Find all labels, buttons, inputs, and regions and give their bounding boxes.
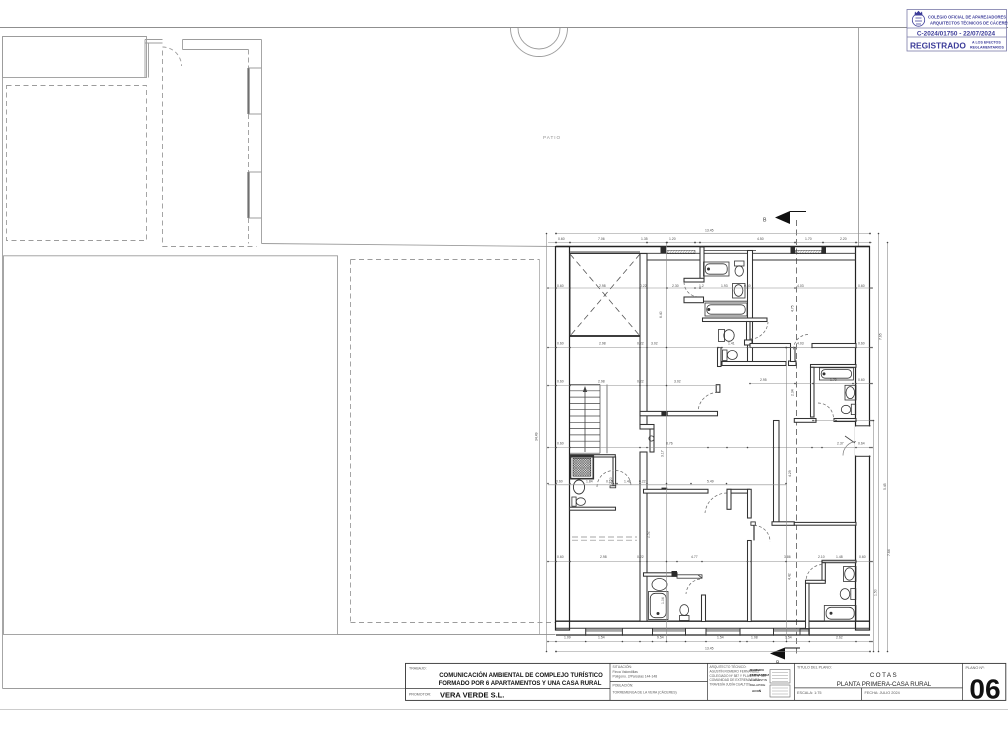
svg-text:0.60: 0.60 [557,342,564,346]
svg-text:0.60: 0.60 [558,237,565,241]
svg-text:0.64: 0.64 [858,442,865,446]
svg-text:TRAVESÍA JUDÍA CUALTOS: TRAVESÍA JUDÍA CUALTOS [710,682,751,686]
svg-text:8.76: 8.76 [666,442,673,446]
svg-text:7.65: 7.65 [879,333,883,340]
svg-text:2.98: 2.98 [600,555,607,559]
svg-text:4.50: 4.50 [757,237,764,241]
svg-text:2.52: 2.52 [647,531,651,538]
svg-text:1.48: 1.48 [836,555,843,559]
svg-text:Polígono. 2/Parcelas 144-148: Polígono. 2/Parcelas 144-148 [613,675,658,679]
svg-text:7.06: 7.06 [598,237,605,241]
svg-text:PROMOTOR:: PROMOTOR: [409,693,431,697]
svg-text:13.45: 13.45 [705,647,714,651]
svg-text:VERA VERDE S.L.: VERA VERDE S.L. [440,691,504,700]
svg-text:COTAS: COTAS [870,672,898,679]
svg-text:1.2: 1.2 [699,284,704,288]
svg-text:FERNANDEZ: FERNANDEZ [750,673,769,677]
svg-text:C-2024/01750 - 22/07/2024: C-2024/01750 - 22/07/2024 [917,30,996,37]
svg-text:5.45: 5.45 [883,483,887,490]
svg-text:SITUACIÓN:: SITUACIÓN: [613,664,632,669]
svg-text:2.30: 2.30 [672,284,679,288]
svg-text:ARQUITECTOS TÉCNICOS DE CÁCERE: ARQUITECTOS TÉCNICOS DE CÁCERES [930,21,1008,26]
svg-text:0.60: 0.60 [557,284,564,288]
svg-text:1.20: 1.20 [669,237,676,241]
svg-text:ESCALA: 1:75: ESCALA: 1:75 [797,691,821,695]
svg-text:0.22: 0.22 [637,342,644,346]
svg-text:4.03: 4.03 [797,284,804,288]
svg-text:0.60: 0.60 [858,378,865,382]
svg-text:0.60: 0.60 [557,555,564,559]
svg-text:0.60: 0.60 [858,342,865,346]
svg-text:Finca Valondillas: Finca Valondillas [613,670,639,674]
svg-text:0.22: 0.22 [639,479,646,483]
svg-text:6.40: 6.40 [659,311,663,318]
svg-text:0.60: 0.60 [557,442,564,446]
svg-text:0.60: 0.60 [858,284,865,288]
svg-text:2.62: 2.62 [836,636,843,640]
svg-text:06: 06 [969,674,1000,705]
svg-text:COLEGIO OFICIAL DE APAREJADORE: COLEGIO OFICIAL DE APAREJADORES [928,15,1006,20]
svg-text:1.08: 1.08 [751,636,758,640]
svg-text:1.54: 1.54 [598,636,605,640]
svg-text:1.54: 1.54 [785,636,792,640]
svg-text:1.54: 1.54 [717,636,724,640]
svg-text:ROMERO: ROMERO [750,668,765,672]
svg-text:9.54: 9.54 [657,636,664,640]
svg-text:3.86: 3.86 [784,555,791,559]
svg-text:A LOS EFECTOS: A LOS EFECTOS [972,41,1001,45]
svg-text:3.02: 3.02 [651,342,658,346]
svg-text:1.84: 1.84 [586,479,593,483]
svg-text:REGLAMENTARIOS: REGLAMENTARIOS [970,46,1004,50]
svg-text:TRABAJO:: TRABAJO: [409,667,427,671]
svg-text:FECHA: JULIO 2024: FECHA: JULIO 2024 [865,691,900,695]
svg-text:1.41: 1.41 [728,342,735,346]
svg-text:0.22: 0.22 [640,284,647,288]
svg-text:PLANO Nº:: PLANO Nº: [966,666,985,670]
svg-text:34.49: 34.49 [535,432,539,441]
svg-text:0.60: 0.60 [556,479,563,483]
svg-text:0.60: 0.60 [744,284,751,288]
svg-text:4.29: 4.29 [788,470,792,477]
svg-text:3.17: 3.17 [661,450,665,457]
svg-text:ACOÑ: ACOÑ [752,688,762,693]
svg-text:2.10: 2.10 [818,555,825,559]
svg-text:2. AGUSTIN: 2. AGUSTIN [750,678,767,682]
svg-text:4.77: 4.77 [691,555,698,559]
svg-text:1.04: 1.04 [661,597,665,604]
svg-text:0.22: 0.22 [637,555,644,559]
svg-text:1.09: 1.09 [564,636,571,640]
svg-text:5.49: 5.49 [707,479,714,483]
svg-text:POBLACIÓN:: POBLACIÓN: [613,683,634,688]
svg-text:TORREMENGA DE LA VERA (CÁCERES: TORREMENGA DE LA VERA (CÁCERES) [613,691,677,695]
svg-text:COMUNICACIÓN AMBIENTAL DE COMP: COMUNICACIÓN AMBIENTAL DE COMPLEJO TURÍS… [439,671,603,679]
svg-text:DELAPIDE: DELAPIDE [750,683,765,687]
svg-text:1.50: 1.50 [874,589,878,596]
svg-text:4.42: 4.42 [788,573,792,580]
svg-text:1.93: 1.93 [721,284,728,288]
svg-text:2.20: 2.20 [840,237,847,241]
svg-text:ARQUITECTO TÉCNICO:: ARQUITECTO TÉCNICO: [710,664,747,669]
svg-text:B: B [763,218,767,224]
svg-text:1.79: 1.79 [830,378,837,382]
svg-text:4.75: 4.75 [791,305,795,312]
svg-text:TITULO DEL PLANO:: TITULO DEL PLANO: [797,666,832,670]
svg-text:2.95: 2.95 [760,378,767,382]
svg-text:REGISTRADO: REGISTRADO [910,40,966,50]
svg-text:FORMADO POR 6 APARTAMENTOS Y U: FORMADO POR 6 APARTAMENTOS Y UNA CASA RU… [439,681,602,687]
svg-text:PATIO: PATIO [543,135,561,140]
svg-text:2.37: 2.37 [837,442,844,446]
svg-text:1.70: 1.70 [805,237,812,241]
svg-text:2.98: 2.98 [598,380,605,384]
svg-text:0.60: 0.60 [859,555,866,559]
svg-text:PLANTA PRIMERA-CASA RURAL: PLANTA PRIMERA-CASA RURAL [837,681,932,688]
svg-text:2.98: 2.98 [599,284,606,288]
svg-text:4.03: 4.03 [797,342,804,346]
svg-text:0.22: 0.22 [637,380,644,384]
svg-text:2.34: 2.34 [791,389,795,396]
svg-text:2.20: 2.20 [609,477,613,484]
svg-text:1.48: 1.48 [624,479,631,483]
svg-text:7.64: 7.64 [887,549,891,556]
svg-text:0.60: 0.60 [557,380,564,384]
svg-text:13.45: 13.45 [705,229,714,233]
svg-text:2.98: 2.98 [599,342,606,346]
svg-text:3.02: 3.02 [674,380,681,384]
svg-text:1.35: 1.35 [641,237,648,241]
